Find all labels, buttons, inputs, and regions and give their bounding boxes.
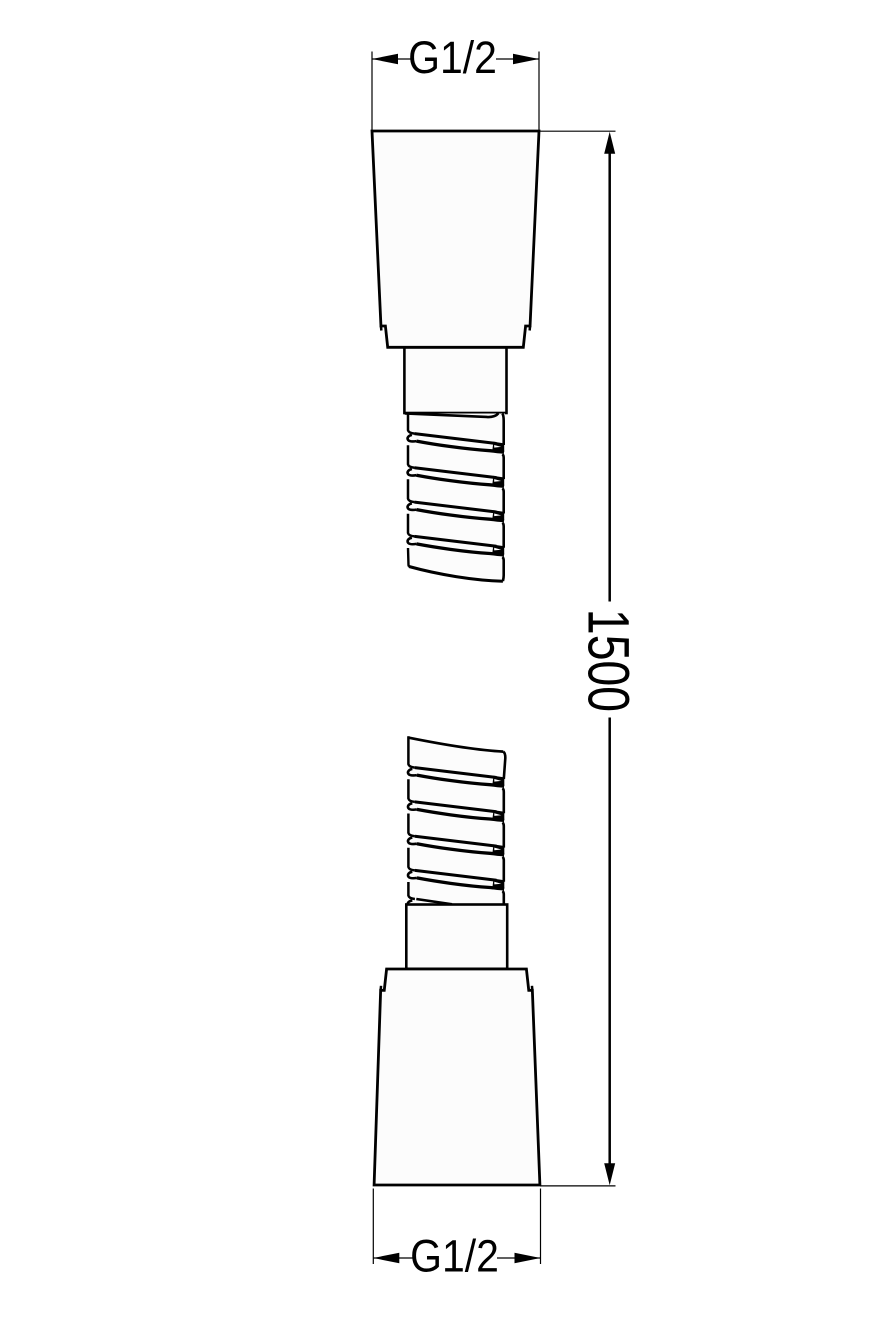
svg-text:G1/2: G1/2 — [408, 33, 497, 83]
svg-text:G1/2: G1/2 — [410, 1232, 499, 1282]
svg-text:1500: 1500 — [575, 609, 640, 712]
